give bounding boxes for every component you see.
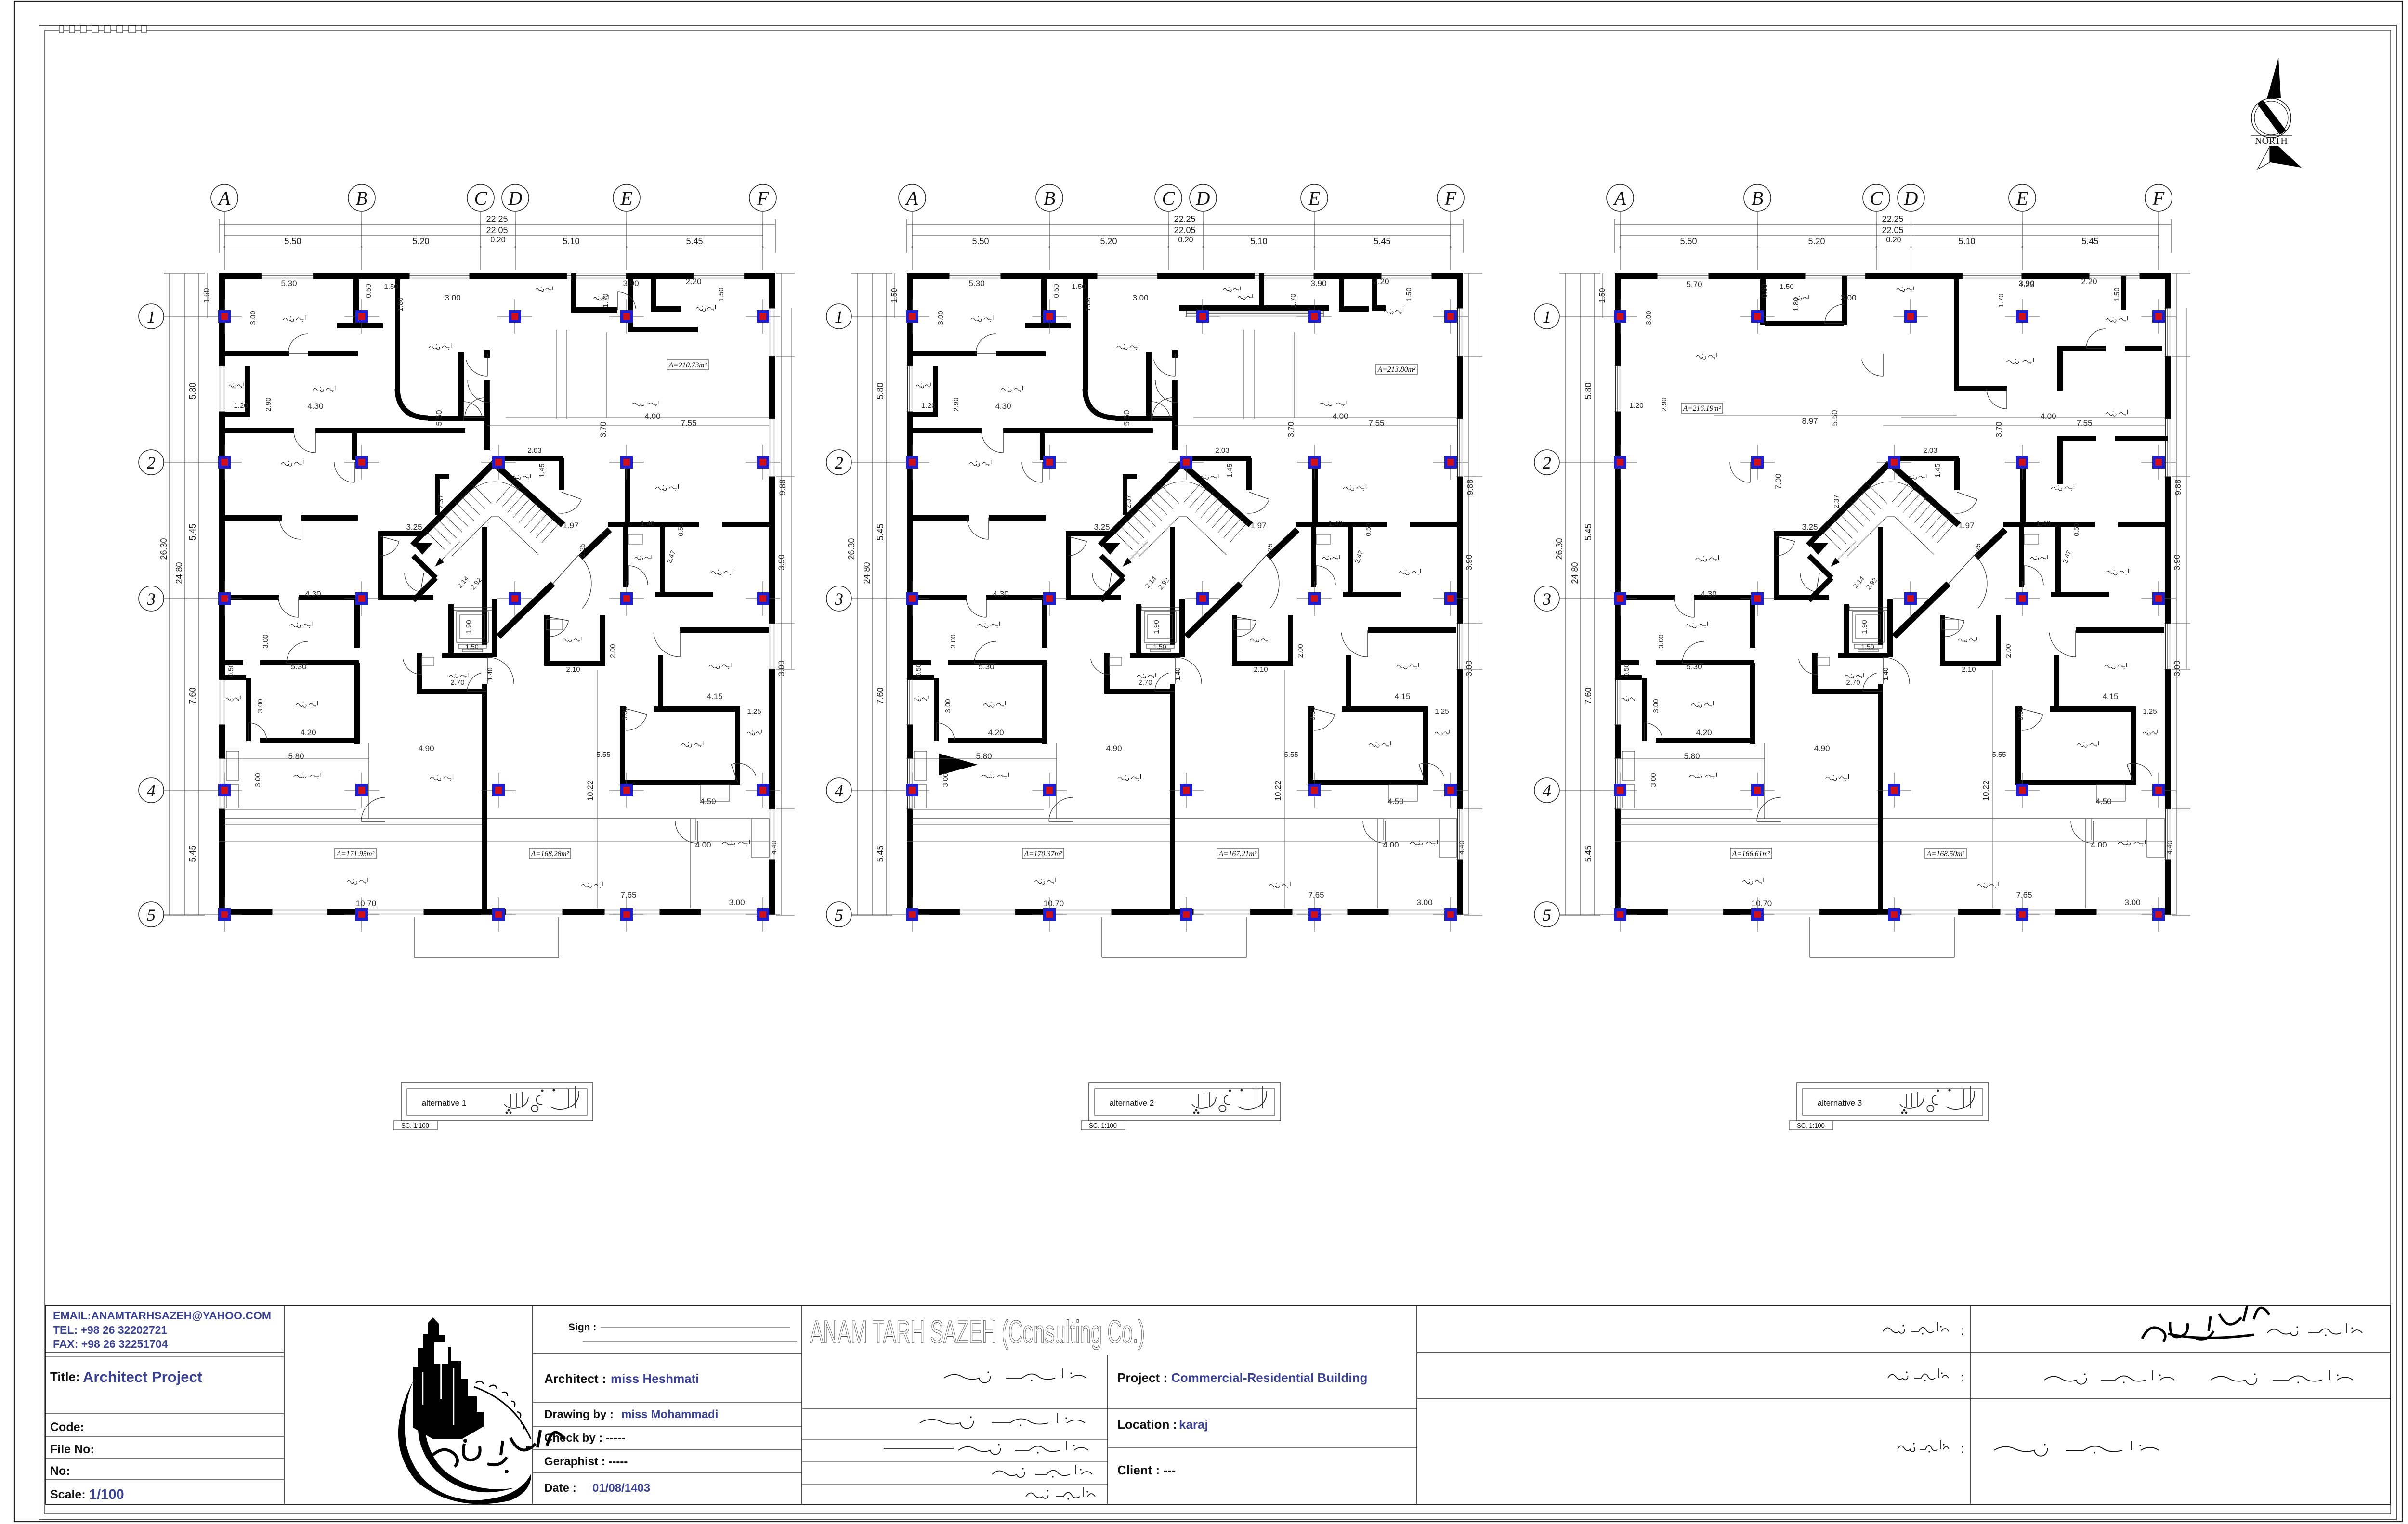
svg-text:5.80: 5.80 [876, 382, 885, 399]
svg-text:24.80: 24.80 [1570, 562, 1580, 584]
svg-text:5: 5 [147, 905, 156, 925]
svg-text:D: D [508, 187, 523, 209]
svg-text:26.30: 26.30 [847, 538, 856, 560]
svg-text:1.80: 1.80 [1792, 297, 1800, 311]
svg-text:1.70: 1.70 [1997, 293, 2005, 307]
svg-text:3: 3 [1542, 589, 1551, 609]
svg-text:4.40: 4.40 [2166, 840, 2174, 854]
svg-text:Drawing by :: Drawing by : [544, 1408, 614, 1421]
svg-text:alternative 3: alternative 3 [1818, 1098, 1862, 1107]
svg-text:3.90: 3.90 [1465, 554, 1474, 570]
svg-text:3.00: 3.00 [445, 293, 460, 302]
svg-text:A=167.21m²: A=167.21m² [1218, 850, 1257, 858]
svg-text:4.90: 4.90 [1814, 744, 1830, 753]
svg-text:22.05: 22.05 [486, 225, 508, 235]
svg-text:24.80: 24.80 [174, 562, 184, 584]
svg-text:2.37: 2.37 [1832, 495, 1841, 508]
svg-text:A: A [905, 187, 918, 209]
svg-text:1.40: 1.40 [486, 667, 494, 680]
svg-text:1.80: 1.80 [1084, 297, 1092, 311]
svg-text:01/08/1403: 01/08/1403 [592, 1482, 650, 1495]
svg-text:4.30: 4.30 [1701, 589, 1716, 599]
svg-text:1.70: 1.70 [602, 293, 610, 307]
svg-text:3: 3 [834, 589, 843, 609]
svg-text:3.70: 3.70 [1286, 421, 1296, 437]
svg-text:4.30: 4.30 [307, 402, 323, 411]
svg-text:5.45: 5.45 [876, 845, 885, 862]
svg-text:3.00: 3.00 [2172, 660, 2182, 676]
svg-text:3.25: 3.25 [1094, 522, 1110, 532]
svg-text:4.15: 4.15 [707, 692, 722, 701]
svg-text:B: B [356, 187, 367, 209]
svg-text:1.50: 1.50 [717, 287, 725, 301]
svg-text:Location :: Location : [1117, 1417, 1177, 1432]
svg-text:Architect Project: Architect Project [83, 1368, 202, 1385]
svg-text:26.30: 26.30 [159, 538, 169, 560]
svg-text:1.25: 1.25 [747, 707, 761, 716]
svg-text:24.80: 24.80 [862, 562, 872, 584]
svg-text:4: 4 [147, 781, 156, 800]
svg-text:2.25: 2.25 [1974, 543, 1982, 557]
svg-text:0.50: 0.50 [1760, 284, 1768, 298]
svg-text:2.90: 2.90 [264, 397, 273, 411]
svg-text:3.00: 3.00 [937, 311, 945, 325]
svg-text:22.25: 22.25 [1882, 214, 1903, 224]
svg-text:1.90: 1.90 [465, 620, 473, 634]
svg-text:3.00: 3.00 [1416, 898, 1432, 907]
svg-text:F: F [1444, 187, 1457, 209]
svg-text:A=171.95m²: A=171.95m² [336, 850, 375, 858]
svg-text:5.50: 5.50 [972, 236, 989, 246]
svg-text:C: C [1870, 187, 1884, 209]
svg-text:4.90: 4.90 [1106, 744, 1122, 753]
svg-text:4.30: 4.30 [305, 589, 321, 599]
svg-text:2.70: 2.70 [1846, 678, 1860, 687]
svg-text:SC. 1:100: SC. 1:100 [1089, 1122, 1117, 1129]
svg-text:0.50: 0.50 [227, 664, 235, 677]
svg-text:4: 4 [835, 781, 843, 800]
svg-text:10.70: 10.70 [1752, 899, 1772, 908]
svg-text:10.22: 10.22 [586, 781, 595, 801]
svg-text::: : [1961, 1441, 1964, 1456]
svg-text:SC. 1:100: SC. 1:100 [401, 1122, 429, 1129]
svg-text:0.50: 0.50 [1364, 523, 1372, 536]
svg-text:5.45: 5.45 [686, 236, 703, 246]
svg-text:miss Mohammadi: miss Mohammadi [621, 1408, 718, 1421]
svg-text:0.20: 0.20 [1178, 236, 1193, 244]
svg-text:8.97: 8.97 [1802, 417, 1818, 426]
svg-text:4.00: 4.00 [1383, 840, 1399, 849]
svg-text:2.20: 2.20 [1373, 277, 1389, 286]
svg-text:3.90: 3.90 [1310, 279, 1326, 288]
svg-text:10.70: 10.70 [356, 899, 377, 908]
svg-text:No:: No: [50, 1464, 70, 1478]
svg-text:2.00: 2.00 [1296, 644, 1305, 658]
svg-text:5.45: 5.45 [876, 523, 885, 540]
svg-text:1.50: 1.50 [1153, 643, 1166, 651]
svg-text:Architect :: Architect : [544, 1371, 606, 1386]
svg-text:A=216.19m²: A=216.19m² [1683, 404, 1721, 413]
svg-text:E: E [2016, 187, 2028, 209]
svg-text:3.00: 3.00 [2016, 706, 2025, 720]
svg-text:5.45: 5.45 [1584, 523, 1593, 540]
svg-text:1.40: 1.40 [1174, 667, 1181, 680]
svg-text:0.50: 0.50 [365, 284, 373, 298]
svg-text:1.45: 1.45 [1934, 463, 1942, 477]
svg-text:0.50: 0.50 [677, 523, 684, 536]
svg-text:Project :: Project : [1117, 1370, 1167, 1385]
svg-text:5.30: 5.30 [281, 279, 297, 288]
svg-text:2.90: 2.90 [1660, 397, 1668, 411]
svg-text:4.20: 4.20 [1696, 728, 1712, 737]
svg-text:0.20: 0.20 [490, 236, 505, 244]
svg-text:Sign :: Sign : [568, 1322, 596, 1333]
svg-text:1.45: 1.45 [538, 463, 546, 477]
svg-text:3.70: 3.70 [1994, 421, 2003, 437]
svg-text:A=168.28m²: A=168.28m² [531, 850, 569, 858]
svg-text:EMAIL:ANAMTARHSAZEH@YAHOO.COM: EMAIL:ANAMTARHSAZEH@YAHOO.COM [53, 1309, 271, 1322]
svg-text:3.00: 3.00 [621, 706, 629, 720]
svg-text:1: 1 [147, 307, 156, 326]
svg-text:3.00: 3.00 [942, 773, 950, 787]
svg-text:2.00: 2.00 [2004, 644, 2013, 658]
svg-text:0.20: 0.20 [1886, 236, 1901, 244]
svg-text:5.50: 5.50 [284, 236, 301, 246]
svg-text:0.50: 0.50 [1623, 664, 1630, 677]
svg-text:3.90: 3.90 [777, 554, 786, 570]
svg-text:5.45: 5.45 [1374, 236, 1390, 246]
svg-text:A=168.50m²: A=168.50m² [1926, 850, 1965, 858]
svg-text:1.90: 1.90 [1152, 620, 1161, 634]
svg-text:1.40: 1.40 [1328, 520, 1342, 528]
svg-text:5.10: 5.10 [1250, 236, 1267, 246]
svg-text:5.45: 5.45 [1584, 845, 1593, 862]
svg-text:miss Heshmati: miss Heshmati [611, 1371, 699, 1386]
svg-text:3.00: 3.00 [262, 634, 270, 648]
svg-text:5.55: 5.55 [596, 751, 610, 759]
svg-text:2.10: 2.10 [566, 665, 580, 674]
svg-text:7.00: 7.00 [1774, 473, 1783, 489]
svg-text:7.65: 7.65 [1308, 890, 1324, 899]
svg-text:3.25: 3.25 [406, 522, 422, 532]
svg-text:File No:: File No: [50, 1443, 94, 1456]
svg-text:Code:: Code: [50, 1420, 84, 1434]
svg-text:5.50: 5.50 [1680, 236, 1697, 246]
svg-text:1.25: 1.25 [1435, 707, 1449, 716]
svg-text:ANAM TARH SAZEH (Consulting Co: ANAM TARH SAZEH (Consulting Co.) [810, 1314, 1145, 1350]
svg-text:1.70: 1.70 [1289, 293, 1297, 307]
svg-text:7.60: 7.60 [1584, 687, 1593, 704]
svg-text:4.20: 4.20 [300, 728, 316, 737]
svg-text:B: B [1752, 187, 1763, 209]
svg-text:E: E [1308, 187, 1320, 209]
svg-text:1.97: 1.97 [1250, 521, 1266, 530]
svg-text:9.88: 9.88 [2173, 479, 2183, 495]
svg-text:5.80: 5.80 [976, 752, 992, 761]
svg-text:26.30: 26.30 [1555, 538, 1564, 560]
svg-text:3.00: 3.00 [1649, 773, 1658, 787]
svg-text:B: B [1044, 187, 1055, 209]
svg-text:alternative 1: alternative 1 [422, 1098, 467, 1107]
svg-text:2.03: 2.03 [1923, 446, 1937, 455]
svg-text:5.80: 5.80 [1584, 382, 1593, 399]
svg-text:2: 2 [835, 453, 843, 472]
svg-text:A=213.80m²: A=213.80m² [1377, 365, 1416, 374]
svg-text:2.03: 2.03 [527, 446, 541, 455]
svg-text:A: A [217, 187, 231, 209]
svg-text:1.40: 1.40 [2036, 520, 2050, 528]
svg-text:2.10: 2.10 [1254, 665, 1268, 674]
svg-text:5.80: 5.80 [1684, 752, 1700, 761]
svg-text:F: F [2152, 187, 2165, 209]
svg-text:Title:: Title: [50, 1369, 80, 1384]
svg-text:1.25: 1.25 [2143, 707, 2157, 716]
svg-text:10.22: 10.22 [1981, 781, 1990, 801]
svg-text:1: 1 [835, 307, 843, 326]
svg-text:10.70: 10.70 [1044, 899, 1064, 908]
svg-text:5.20: 5.20 [1100, 236, 1117, 246]
svg-text:1.97: 1.97 [1958, 521, 1974, 530]
svg-text:Commercial-Residential Buildin: Commercial-Residential Building [1171, 1370, 1367, 1385]
svg-text:Scale:: Scale: [50, 1488, 86, 1501]
svg-text:4.50: 4.50 [700, 797, 716, 806]
svg-text:4.00: 4.00 [1332, 412, 1348, 421]
svg-text:C: C [1162, 187, 1176, 209]
svg-text::: : [1961, 1323, 1964, 1338]
svg-text:FAX: +98 26 32251704: FAX: +98 26 32251704 [53, 1338, 168, 1350]
svg-text:2.03: 2.03 [1215, 446, 1229, 455]
svg-text:5.30: 5.30 [1686, 662, 1702, 671]
svg-text:5: 5 [835, 905, 843, 925]
svg-text:4.40: 4.40 [770, 840, 778, 854]
svg-text:4.15: 4.15 [1394, 692, 1410, 701]
svg-text:F: F [757, 187, 769, 209]
svg-text:1.50: 1.50 [465, 643, 478, 651]
svg-text:5.10: 5.10 [563, 236, 579, 246]
svg-text:7.65: 7.65 [620, 890, 636, 899]
svg-text:1.90: 1.90 [1860, 620, 1869, 634]
svg-text:5.45: 5.45 [188, 845, 197, 862]
svg-text:1.50: 1.50 [2113, 287, 2121, 301]
svg-text:3: 3 [146, 589, 156, 609]
svg-text:7.60: 7.60 [876, 687, 885, 704]
svg-text:4.50: 4.50 [2095, 797, 2111, 806]
svg-text:2.37: 2.37 [1125, 495, 1133, 508]
svg-text:7.65: 7.65 [2016, 890, 2032, 899]
svg-text:4.15: 4.15 [2102, 692, 2118, 701]
svg-text:4.50: 4.50 [1387, 797, 1403, 806]
svg-text:5.30: 5.30 [968, 279, 984, 288]
svg-text:3.00: 3.00 [729, 898, 745, 907]
svg-text:SC. 1:100: SC. 1:100 [1797, 1122, 1825, 1129]
svg-text:1.40: 1.40 [1882, 667, 1889, 680]
svg-text:7.55: 7.55 [1368, 418, 1384, 428]
svg-text:7.55: 7.55 [2076, 418, 2092, 428]
svg-text:2.25: 2.25 [1266, 543, 1274, 557]
svg-text:3.90: 3.90 [623, 279, 639, 288]
svg-text:4.00: 4.00 [2091, 840, 2107, 849]
svg-text:C: C [474, 187, 488, 209]
svg-text:1.50: 1.50 [1405, 287, 1413, 301]
svg-text:3.90: 3.90 [2018, 279, 2034, 288]
svg-text:2.20: 2.20 [2081, 277, 2097, 286]
svg-text:5.30: 5.30 [290, 662, 306, 671]
svg-text:D: D [1904, 187, 1918, 209]
svg-text:4.00: 4.00 [2040, 412, 2056, 421]
svg-text:1.40: 1.40 [641, 520, 654, 528]
svg-text:3.00: 3.00 [1465, 660, 1474, 676]
svg-text:A=210.73m²: A=210.73m² [668, 361, 707, 369]
svg-text:2.90: 2.90 [952, 397, 960, 411]
svg-text:2.10: 2.10 [1962, 665, 1976, 674]
svg-text:3.00: 3.00 [256, 699, 264, 713]
svg-text:3.00: 3.00 [1645, 311, 1653, 325]
svg-text:9.88: 9.88 [778, 479, 787, 495]
svg-text:2: 2 [147, 453, 156, 472]
svg-text:4: 4 [1543, 781, 1551, 800]
svg-text:0.50: 0.50 [1052, 284, 1060, 298]
svg-text:1.45: 1.45 [1226, 463, 1234, 477]
svg-text:4.30: 4.30 [993, 589, 1008, 599]
svg-text:9.88: 9.88 [1466, 479, 1475, 495]
svg-text:22.25: 22.25 [1174, 214, 1195, 224]
svg-text:1.20: 1.20 [1629, 402, 1643, 410]
svg-text:7.55: 7.55 [681, 418, 696, 428]
svg-text:3.00: 3.00 [777, 660, 786, 676]
svg-text:1.50: 1.50 [1780, 283, 1793, 291]
svg-text:1.50: 1.50 [1861, 643, 1874, 651]
svg-text:Date :: Date : [544, 1482, 576, 1495]
svg-text:5.45: 5.45 [2081, 236, 2098, 246]
svg-text:2: 2 [1543, 453, 1551, 472]
svg-text:A=166.61m²: A=166.61m² [1732, 850, 1770, 858]
svg-text:0.50: 0.50 [2072, 523, 2080, 536]
svg-text:3.00: 3.00 [249, 311, 257, 325]
svg-text:5.30: 5.30 [978, 662, 994, 671]
svg-text:4.90: 4.90 [418, 744, 434, 753]
svg-text:2.37: 2.37 [437, 495, 445, 508]
svg-text:5.80: 5.80 [188, 382, 197, 399]
svg-text:Geraphist : -----: Geraphist : ----- [544, 1455, 628, 1468]
svg-text:3.00: 3.00 [949, 634, 957, 648]
svg-text:5.80: 5.80 [288, 752, 304, 761]
svg-text:4.00: 4.00 [695, 840, 711, 849]
svg-text:22.25: 22.25 [486, 214, 508, 224]
svg-text:3.00: 3.00 [2124, 898, 2140, 907]
svg-text:0.50: 0.50 [915, 664, 922, 677]
svg-text:A: A [1613, 187, 1626, 209]
svg-text:1.20: 1.20 [234, 402, 248, 410]
svg-text:TEL: +98 26 32202721: TEL: +98 26 32202721 [53, 1324, 167, 1336]
svg-text:4.40: 4.40 [1458, 840, 1466, 854]
svg-text:5.20: 5.20 [412, 236, 429, 246]
svg-text:5.20: 5.20 [1808, 236, 1825, 246]
svg-text:A=170.37m²: A=170.37m² [1024, 850, 1062, 858]
svg-text:4.30: 4.30 [995, 402, 1011, 411]
svg-text:1/100: 1/100 [89, 1487, 124, 1502]
svg-text:1.97: 1.97 [563, 521, 578, 530]
svg-text:5.10: 5.10 [1958, 236, 1975, 246]
svg-text:1: 1 [1543, 307, 1551, 326]
svg-text:5.45: 5.45 [188, 523, 197, 540]
svg-text:karaj: karaj [1179, 1417, 1208, 1432]
svg-text:5.55: 5.55 [1284, 751, 1298, 759]
svg-text:2.20: 2.20 [685, 277, 701, 286]
svg-text:2.25: 2.25 [578, 543, 587, 557]
svg-text:NORTH: NORTH [2255, 136, 2288, 146]
svg-text:3.70: 3.70 [599, 421, 608, 437]
svg-text:5: 5 [1543, 905, 1551, 925]
svg-text:D: D [1196, 187, 1210, 209]
svg-text:5.70: 5.70 [1686, 280, 1702, 289]
svg-text:10.22: 10.22 [1273, 781, 1283, 801]
svg-text:5.50: 5.50 [1122, 410, 1131, 426]
svg-text:2.00: 2.00 [609, 644, 617, 658]
svg-text:4.20: 4.20 [988, 728, 1004, 737]
svg-text:3.00: 3.00 [254, 773, 262, 787]
svg-text:4.00: 4.00 [644, 412, 660, 421]
svg-text:3.90: 3.90 [2172, 554, 2182, 570]
svg-text:3.00: 3.00 [1840, 293, 1856, 302]
svg-text:3.25: 3.25 [1802, 522, 1818, 532]
svg-text:5.55: 5.55 [1992, 751, 2006, 759]
svg-text:2.70: 2.70 [450, 678, 464, 687]
svg-text:1.50: 1.50 [384, 283, 398, 291]
svg-text:3.00: 3.00 [944, 699, 952, 713]
svg-text:5.50: 5.50 [434, 410, 444, 426]
svg-text:1.80: 1.80 [396, 297, 405, 311]
svg-text:1.50: 1.50 [1072, 283, 1086, 291]
svg-text:3.00: 3.00 [1309, 706, 1317, 720]
svg-text:22.05: 22.05 [1882, 225, 1903, 235]
svg-text:alternative 2: alternative 2 [1110, 1098, 1154, 1107]
svg-text:2.70: 2.70 [1138, 678, 1152, 687]
svg-text:5.50: 5.50 [1830, 410, 1839, 426]
svg-text::: : [1961, 1370, 1964, 1384]
svg-text:1.20: 1.20 [921, 402, 935, 410]
svg-text:7.60: 7.60 [188, 687, 197, 704]
svg-text:3.00: 3.00 [1657, 634, 1665, 648]
svg-text:E: E [620, 187, 632, 209]
svg-text:3.00: 3.00 [1652, 699, 1660, 713]
svg-text:3.00: 3.00 [1132, 293, 1148, 302]
svg-text:Client : ---: Client : --- [1117, 1463, 1176, 1477]
svg-text:22.05: 22.05 [1174, 225, 1195, 235]
